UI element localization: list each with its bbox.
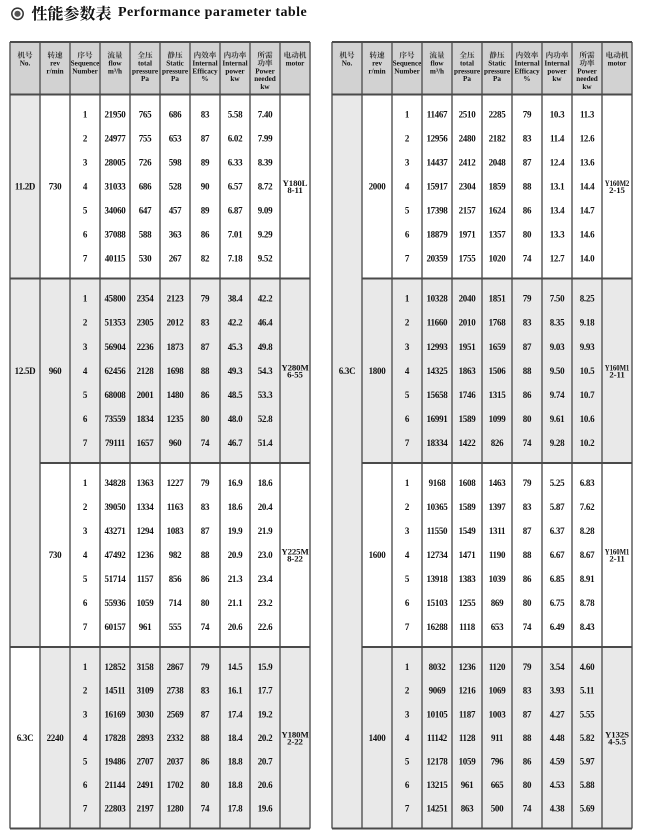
svg-text:2123: 2123 — [167, 294, 185, 304]
svg-text:1549: 1549 — [459, 526, 477, 536]
svg-text:9.50: 9.50 — [550, 366, 565, 376]
svg-text:1294: 1294 — [137, 526, 155, 536]
svg-text:796: 796 — [491, 756, 504, 766]
svg-text:6.37: 6.37 — [550, 526, 565, 536]
svg-text:79: 79 — [201, 478, 210, 488]
svg-text:856: 856 — [169, 574, 182, 584]
svg-text:10.5: 10.5 — [580, 366, 595, 376]
svg-text:21144: 21144 — [105, 780, 126, 790]
svg-text:1506: 1506 — [489, 366, 507, 376]
svg-text:89: 89 — [201, 158, 210, 168]
svg-text:18.8: 18.8 — [228, 756, 243, 766]
svg-text:83: 83 — [523, 134, 532, 144]
svg-text:54.3: 54.3 — [258, 366, 273, 376]
svg-text:62456: 62456 — [104, 366, 126, 376]
svg-text:2412: 2412 — [459, 158, 477, 168]
svg-text:flow: flow — [430, 59, 444, 67]
svg-text:pressure: pressure — [484, 67, 510, 75]
svg-text:2-15: 2-15 — [609, 185, 625, 195]
svg-text:%: % — [523, 75, 530, 83]
svg-text:74: 74 — [523, 438, 532, 448]
svg-text:1768: 1768 — [489, 318, 507, 328]
svg-text:6.87: 6.87 — [228, 206, 243, 216]
svg-text:51353: 51353 — [104, 318, 126, 328]
svg-text:2305: 2305 — [137, 318, 155, 328]
svg-text:1608: 1608 — [459, 478, 477, 488]
svg-text:Pa: Pa — [463, 75, 471, 83]
svg-text:86: 86 — [201, 230, 210, 240]
svg-text:1657: 1657 — [137, 438, 155, 448]
svg-text:6.3C: 6.3C — [339, 366, 356, 376]
svg-text:555: 555 — [169, 622, 182, 632]
svg-text:20.4: 20.4 — [258, 502, 273, 512]
svg-text:11142: 11142 — [427, 733, 448, 743]
svg-text:87: 87 — [523, 158, 532, 168]
svg-text:12.6: 12.6 — [580, 134, 595, 144]
svg-text:19486: 19486 — [104, 756, 126, 766]
svg-text:87: 87 — [523, 709, 532, 719]
svg-text:1702: 1702 — [167, 780, 185, 790]
svg-text:Pa: Pa — [493, 75, 501, 83]
svg-text:12178: 12178 — [426, 756, 448, 766]
svg-text:15103: 15103 — [426, 598, 448, 608]
svg-text:1069: 1069 — [489, 686, 507, 696]
svg-text:90: 90 — [201, 182, 210, 192]
svg-text:1039: 1039 — [489, 574, 507, 584]
svg-text:13.6: 13.6 — [580, 158, 595, 168]
svg-text:42.2: 42.2 — [228, 318, 243, 328]
svg-text:74: 74 — [523, 622, 532, 632]
svg-text:79111: 79111 — [105, 438, 126, 448]
svg-text:Internal: Internal — [514, 59, 539, 67]
svg-text:39050: 39050 — [104, 502, 126, 512]
svg-text:2-11: 2-11 — [609, 554, 624, 564]
svg-text:18.6: 18.6 — [228, 502, 243, 512]
svg-text:8.35: 8.35 — [550, 318, 565, 328]
svg-text:86: 86 — [523, 574, 532, 584]
svg-text:6.75: 6.75 — [550, 598, 565, 608]
svg-text:9.18: 9.18 — [580, 318, 595, 328]
svg-text:960: 960 — [169, 438, 182, 448]
svg-text:1873: 1873 — [167, 342, 185, 352]
svg-text:79: 79 — [523, 478, 532, 488]
svg-text:14.6: 14.6 — [580, 230, 595, 240]
svg-text:80: 80 — [523, 230, 532, 240]
svg-text:1698: 1698 — [167, 366, 185, 376]
svg-text:87: 87 — [201, 709, 210, 719]
svg-text:31033: 31033 — [104, 182, 126, 192]
svg-text:Internal: Internal — [544, 59, 569, 67]
svg-text:12734: 12734 — [426, 550, 448, 560]
svg-text:530: 530 — [139, 254, 152, 264]
svg-text:1746: 1746 — [459, 390, 477, 400]
svg-text:9.74: 9.74 — [550, 390, 565, 400]
svg-text:13.1: 13.1 — [550, 182, 565, 192]
svg-text:1755: 1755 — [459, 254, 477, 264]
svg-text:45800: 45800 — [104, 294, 126, 304]
svg-text:826: 826 — [491, 438, 504, 448]
svg-text:18.6: 18.6 — [258, 478, 273, 488]
svg-text:83: 83 — [523, 502, 532, 512]
svg-text:10.7: 10.7 — [580, 390, 595, 400]
svg-text:13918: 13918 — [426, 574, 448, 584]
svg-text:Power: Power — [255, 67, 275, 75]
svg-text:2569: 2569 — [167, 709, 185, 719]
svg-text:needed: needed — [254, 75, 276, 83]
svg-text:20.6: 20.6 — [258, 780, 273, 790]
svg-text:7.18: 7.18 — [228, 254, 243, 264]
svg-text:17.7: 17.7 — [258, 686, 273, 696]
svg-text:r/min: r/min — [368, 67, 385, 75]
svg-text:8.72: 8.72 — [258, 182, 273, 192]
svg-text:88: 88 — [523, 366, 532, 376]
svg-text:686: 686 — [139, 182, 152, 192]
svg-text:pressure: pressure — [454, 67, 480, 75]
svg-text:17.8: 17.8 — [228, 804, 243, 814]
svg-text:56904: 56904 — [104, 342, 126, 352]
svg-text:motor: motor — [286, 59, 306, 67]
svg-text:total: total — [460, 59, 474, 67]
svg-text:863: 863 — [461, 804, 474, 814]
svg-text:1589: 1589 — [459, 502, 477, 512]
svg-text:51714: 51714 — [104, 574, 126, 584]
svg-text:48.5: 48.5 — [228, 390, 243, 400]
svg-text:9168: 9168 — [429, 478, 447, 488]
svg-text:86: 86 — [201, 390, 210, 400]
svg-text:14.0: 14.0 — [580, 254, 595, 264]
svg-text:2240: 2240 — [47, 733, 65, 743]
svg-text:1187: 1187 — [459, 709, 476, 719]
svg-text:1971: 1971 — [459, 230, 477, 240]
svg-text:8.67: 8.67 — [580, 550, 595, 560]
svg-text:4.59: 4.59 — [550, 756, 565, 766]
svg-text:55936: 55936 — [104, 598, 126, 608]
svg-text:4.48: 4.48 — [550, 733, 565, 743]
svg-text:21.9: 21.9 — [258, 526, 273, 536]
svg-text:8.78: 8.78 — [580, 598, 595, 608]
svg-text:12956: 12956 — [426, 134, 448, 144]
svg-text:14325: 14325 — [426, 366, 448, 376]
svg-text:1118: 1118 — [459, 622, 476, 632]
svg-text:730: 730 — [49, 182, 62, 192]
svg-text:Static: Static — [488, 59, 506, 67]
svg-text:5.55: 5.55 — [580, 709, 595, 719]
svg-text:19.2: 19.2 — [258, 709, 273, 719]
svg-text:2182: 2182 — [489, 134, 507, 144]
svg-text:10365: 10365 — [426, 502, 448, 512]
svg-text:22803: 22803 — [104, 804, 126, 814]
svg-text:5.97: 5.97 — [580, 756, 595, 766]
svg-text:74: 74 — [201, 438, 210, 448]
svg-text:34060: 34060 — [104, 206, 126, 216]
svg-text:49.8: 49.8 — [258, 342, 273, 352]
svg-text:21950: 21950 — [104, 110, 126, 120]
svg-text:Efficacy: Efficacy — [192, 67, 218, 75]
svg-text:730: 730 — [49, 550, 62, 560]
svg-text:4.38: 4.38 — [550, 804, 565, 814]
svg-text:3030: 3030 — [137, 709, 155, 719]
svg-text:11.3: 11.3 — [580, 110, 595, 120]
svg-text:power: power — [547, 67, 567, 75]
svg-text:1236: 1236 — [137, 550, 155, 560]
svg-text:18.4: 18.4 — [228, 733, 243, 743]
svg-text:16169: 16169 — [104, 709, 126, 719]
svg-text:7.99: 7.99 — [258, 134, 273, 144]
svg-text:2048: 2048 — [489, 158, 507, 168]
svg-text:14251: 14251 — [426, 804, 448, 814]
svg-text:m³/h: m³/h — [430, 67, 444, 75]
svg-text:869: 869 — [491, 598, 504, 608]
svg-text:49.3: 49.3 — [228, 366, 243, 376]
svg-text:755: 755 — [139, 134, 152, 144]
svg-text:8-22: 8-22 — [287, 554, 303, 564]
svg-text:88: 88 — [201, 366, 210, 376]
svg-text:88: 88 — [523, 550, 532, 560]
svg-text:86: 86 — [523, 756, 532, 766]
svg-text:1190: 1190 — [489, 550, 506, 560]
svg-text:17398: 17398 — [426, 206, 448, 216]
svg-text:960: 960 — [49, 366, 62, 376]
svg-text:1315: 1315 — [489, 390, 507, 400]
svg-text:needed: needed — [576, 75, 598, 83]
svg-text:4.60: 4.60 — [580, 662, 595, 672]
svg-text:88: 88 — [523, 733, 532, 743]
svg-text:11660: 11660 — [427, 318, 448, 328]
svg-text:1357: 1357 — [489, 230, 507, 240]
svg-text:3.54: 3.54 — [550, 662, 565, 672]
svg-text:12.5D: 12.5D — [15, 366, 37, 376]
svg-text:10328: 10328 — [426, 294, 448, 304]
svg-text:7.40: 7.40 — [258, 110, 273, 120]
svg-text:1334: 1334 — [137, 502, 155, 512]
svg-text:1020: 1020 — [489, 254, 507, 264]
svg-text:5.87: 5.87 — [550, 502, 565, 512]
svg-text:9.28: 9.28 — [550, 438, 565, 448]
svg-text:1463: 1463 — [489, 478, 507, 488]
svg-text:2332: 2332 — [167, 733, 185, 743]
svg-text:588: 588 — [139, 230, 152, 240]
svg-text:363: 363 — [169, 230, 182, 240]
svg-text:18879: 18879 — [426, 230, 448, 240]
svg-text:2707: 2707 — [137, 756, 155, 766]
svg-text:Internal: Internal — [222, 59, 247, 67]
svg-text:726: 726 — [139, 158, 152, 168]
svg-text:13215: 13215 — [426, 780, 448, 790]
svg-text:2354: 2354 — [137, 294, 155, 304]
svg-text:2510: 2510 — [459, 110, 477, 120]
svg-text:86: 86 — [523, 206, 532, 216]
svg-text:10.6: 10.6 — [580, 414, 595, 424]
svg-text:88: 88 — [523, 182, 532, 192]
svg-text:1227: 1227 — [167, 478, 185, 488]
svg-text:1851: 1851 — [489, 294, 507, 304]
svg-text:46.7: 46.7 — [228, 438, 243, 448]
svg-text:6.57: 6.57 — [228, 182, 243, 192]
svg-text:Sequence: Sequence — [393, 59, 422, 67]
svg-text:961: 961 — [139, 622, 152, 632]
svg-text:5.69: 5.69 — [580, 804, 595, 814]
svg-text:10.3: 10.3 — [550, 110, 565, 120]
svg-text:Pa: Pa — [171, 75, 179, 83]
svg-text:87: 87 — [201, 134, 210, 144]
svg-text:17.4: 17.4 — [228, 709, 243, 719]
svg-text:No.: No. — [20, 59, 31, 67]
svg-text:4.53: 4.53 — [550, 780, 565, 790]
svg-text:5.82: 5.82 — [580, 733, 595, 743]
svg-text:1422: 1422 — [459, 438, 477, 448]
svg-text:73559: 73559 — [104, 414, 126, 424]
svg-text:21.3: 21.3 — [228, 574, 243, 584]
svg-text:2037: 2037 — [167, 756, 185, 766]
svg-text:23.2: 23.2 — [258, 598, 273, 608]
svg-text:52.8: 52.8 — [258, 414, 273, 424]
svg-text:1255: 1255 — [459, 598, 477, 608]
svg-text:Pa: Pa — [141, 75, 149, 83]
svg-text:80: 80 — [201, 414, 210, 424]
svg-text:1951: 1951 — [459, 342, 477, 352]
svg-text:kw: kw — [230, 75, 240, 83]
svg-text:34828: 34828 — [104, 478, 126, 488]
svg-text:2-22: 2-22 — [287, 736, 303, 746]
svg-text:flow: flow — [108, 59, 122, 67]
svg-text:9.03: 9.03 — [550, 342, 565, 352]
svg-text:4.27: 4.27 — [550, 709, 565, 719]
svg-text:87: 87 — [201, 342, 210, 352]
svg-text:14.5: 14.5 — [228, 662, 243, 672]
svg-text:8.39: 8.39 — [258, 158, 273, 168]
svg-text:20359: 20359 — [426, 254, 448, 264]
svg-text:15917: 15917 — [426, 182, 448, 192]
svg-text:r/min: r/min — [46, 67, 63, 75]
svg-text:1589: 1589 — [459, 414, 477, 424]
svg-text:1157: 1157 — [137, 574, 154, 584]
svg-text:pressure: pressure — [132, 67, 158, 75]
svg-text:11550: 11550 — [427, 526, 448, 536]
svg-text:5.88: 5.88 — [580, 780, 595, 790]
svg-text:665: 665 — [491, 780, 504, 790]
svg-text:1280: 1280 — [167, 804, 185, 814]
svg-text:83: 83 — [523, 686, 532, 696]
svg-text:1480: 1480 — [167, 390, 185, 400]
svg-text:9.29: 9.29 — [258, 230, 273, 240]
svg-text:2491: 2491 — [137, 780, 155, 790]
svg-text:53.3: 53.3 — [258, 390, 273, 400]
svg-text:2001: 2001 — [137, 390, 155, 400]
svg-text:1800: 1800 — [369, 366, 387, 376]
svg-text:1471: 1471 — [459, 550, 477, 560]
svg-text:87: 87 — [523, 526, 532, 536]
svg-text:14.7: 14.7 — [580, 206, 595, 216]
svg-text:1311: 1311 — [489, 526, 506, 536]
svg-text:1383: 1383 — [459, 574, 477, 584]
svg-text:2236: 2236 — [137, 342, 155, 352]
svg-text:5.11: 5.11 — [580, 686, 595, 696]
svg-text:80: 80 — [523, 780, 532, 790]
svg-text:51.4: 51.4 — [258, 438, 273, 448]
svg-text:Sequence: Sequence — [71, 59, 100, 67]
svg-text:68008: 68008 — [104, 390, 126, 400]
svg-text:88: 88 — [201, 550, 210, 560]
svg-text:2480: 2480 — [459, 134, 477, 144]
svg-text:%: % — [201, 75, 208, 83]
svg-text:765: 765 — [139, 110, 152, 120]
svg-text:88: 88 — [201, 733, 210, 743]
svg-text:rev: rev — [50, 59, 60, 67]
svg-text:1128: 1128 — [459, 733, 476, 743]
svg-text:1659: 1659 — [489, 342, 507, 352]
svg-text:5.58: 5.58 — [228, 110, 243, 120]
svg-text:15.9: 15.9 — [258, 662, 273, 672]
svg-text:6.85: 6.85 — [550, 574, 565, 584]
svg-text:43271: 43271 — [104, 526, 126, 536]
svg-text:961: 961 — [461, 780, 474, 790]
svg-text:6.83: 6.83 — [580, 478, 595, 488]
svg-text:24977: 24977 — [104, 134, 126, 144]
svg-text:47492: 47492 — [104, 550, 126, 560]
svg-text:14437: 14437 — [426, 158, 448, 168]
svg-text:82: 82 — [201, 254, 210, 264]
svg-text:7.01: 7.01 — [228, 230, 243, 240]
svg-text:80: 80 — [201, 598, 210, 608]
svg-text:19.9: 19.9 — [228, 526, 243, 536]
svg-text:18.8: 18.8 — [228, 780, 243, 790]
svg-text:2867: 2867 — [167, 662, 185, 672]
svg-text:1859: 1859 — [489, 182, 507, 192]
svg-text:Static: Static — [166, 59, 184, 67]
svg-text:9.09: 9.09 — [258, 206, 273, 216]
svg-text:79: 79 — [201, 294, 210, 304]
svg-text:653: 653 — [169, 134, 182, 144]
svg-text:pressure: pressure — [162, 67, 188, 75]
svg-text:79: 79 — [201, 662, 210, 672]
svg-text:Efficacy: Efficacy — [514, 67, 540, 75]
svg-text:7.50: 7.50 — [550, 294, 565, 304]
svg-text:87: 87 — [201, 526, 210, 536]
svg-text:86: 86 — [201, 756, 210, 766]
svg-text:13.4: 13.4 — [550, 206, 565, 216]
svg-text:686: 686 — [169, 110, 182, 120]
svg-text:1600: 1600 — [369, 550, 387, 560]
svg-text:1059: 1059 — [459, 756, 477, 766]
svg-text:18334: 18334 — [426, 438, 448, 448]
svg-text:79: 79 — [523, 662, 532, 672]
svg-text:2197: 2197 — [137, 804, 155, 814]
svg-text:42.2: 42.2 — [258, 294, 273, 304]
svg-text:598: 598 — [169, 158, 182, 168]
svg-text:10105: 10105 — [426, 709, 448, 719]
svg-text:11.4: 11.4 — [550, 134, 565, 144]
svg-text:500: 500 — [491, 804, 504, 814]
svg-text:74: 74 — [523, 254, 532, 264]
svg-text:16288: 16288 — [426, 622, 448, 632]
svg-text:m³/h: m³/h — [108, 67, 122, 75]
svg-text:14511: 14511 — [105, 686, 126, 696]
svg-text:45.3: 45.3 — [228, 342, 243, 352]
svg-text:16.1: 16.1 — [228, 686, 243, 696]
svg-text:80: 80 — [523, 598, 532, 608]
svg-text:80: 80 — [201, 780, 210, 790]
svg-text:8.43: 8.43 — [580, 622, 595, 632]
svg-text:6.49: 6.49 — [550, 622, 565, 632]
svg-text:20.6: 20.6 — [228, 622, 243, 632]
svg-text:kw: kw — [552, 75, 562, 83]
svg-text:6.3C: 6.3C — [17, 733, 34, 743]
svg-text:8.91: 8.91 — [580, 574, 595, 584]
svg-text:46.4: 46.4 — [258, 318, 273, 328]
svg-text:6.67: 6.67 — [550, 550, 565, 560]
svg-text:83: 83 — [201, 318, 210, 328]
svg-text:1400: 1400 — [369, 733, 387, 743]
